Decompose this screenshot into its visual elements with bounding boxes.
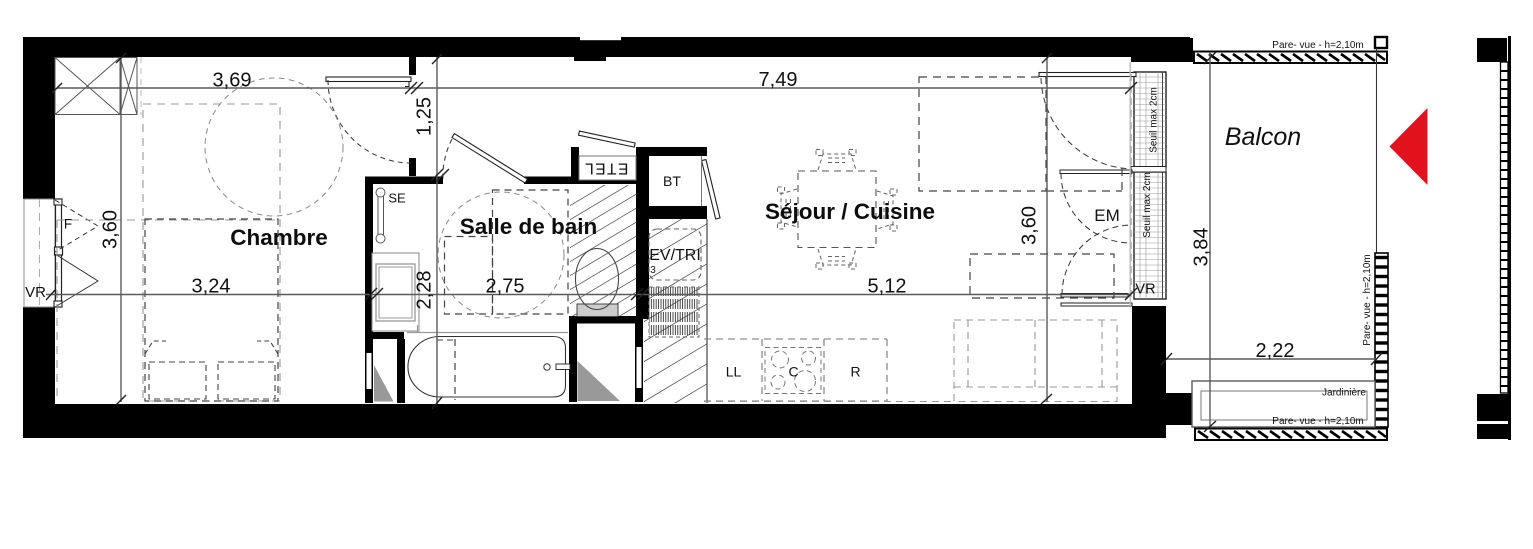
svg-text:Pare- vue - h=2,10m: Pare- vue - h=2,10m	[1272, 40, 1363, 51]
svg-text:1,25: 1,25	[414, 97, 436, 136]
svg-text:5,12: 5,12	[868, 276, 907, 298]
svg-text:BT: BT	[663, 173, 681, 189]
svg-text:Salle de bain: Salle de bain	[460, 214, 598, 239]
svg-text:Balcon: Balcon	[1225, 123, 1301, 151]
svg-text:C: C	[788, 364, 798, 380]
svg-text:Pare- vue - h=2,10m: Pare- vue - h=2,10m	[1362, 254, 1373, 345]
svg-text:EM: EM	[1094, 206, 1120, 225]
svg-text:7,49: 7,49	[759, 69, 798, 91]
svg-text:LL: LL	[726, 364, 742, 380]
svg-text:VR: VR	[25, 284, 46, 301]
svg-text:2,75: 2,75	[486, 276, 525, 298]
svg-text:Chambre: Chambre	[230, 225, 328, 250]
svg-text:3,60: 3,60	[1019, 206, 1041, 245]
svg-text:Seuil max 2cm: Seuil max 2cm	[1142, 172, 1153, 238]
svg-text:Jardinière: Jardinière	[1322, 388, 1366, 399]
svg-text:VR: VR	[1135, 282, 1155, 298]
svg-text:2,28: 2,28	[414, 271, 436, 310]
svg-text:3,84: 3,84	[1191, 228, 1213, 267]
svg-text:3,60: 3,60	[100, 210, 122, 249]
svg-text:Seuil max 2cm: Seuil max 2cm	[1149, 87, 1160, 153]
svg-text:ETEL: ETEL	[584, 160, 629, 177]
svg-text:EV/TRI: EV/TRI	[649, 247, 701, 264]
svg-text:3,24: 3,24	[192, 276, 231, 298]
svg-text:3,69: 3,69	[213, 70, 252, 92]
svg-text:3: 3	[650, 265, 656, 276]
svg-text:Pare- vue - h=2,10m: Pare- vue - h=2,10m	[1272, 416, 1363, 427]
svg-text:Séjour / Cuisine: Séjour / Cuisine	[765, 199, 935, 224]
svg-text:R: R	[850, 364, 860, 380]
svg-text:SE: SE	[388, 191, 406, 206]
svg-text:2,22: 2,22	[1256, 340, 1295, 362]
svg-text:F: F	[64, 217, 72, 232]
